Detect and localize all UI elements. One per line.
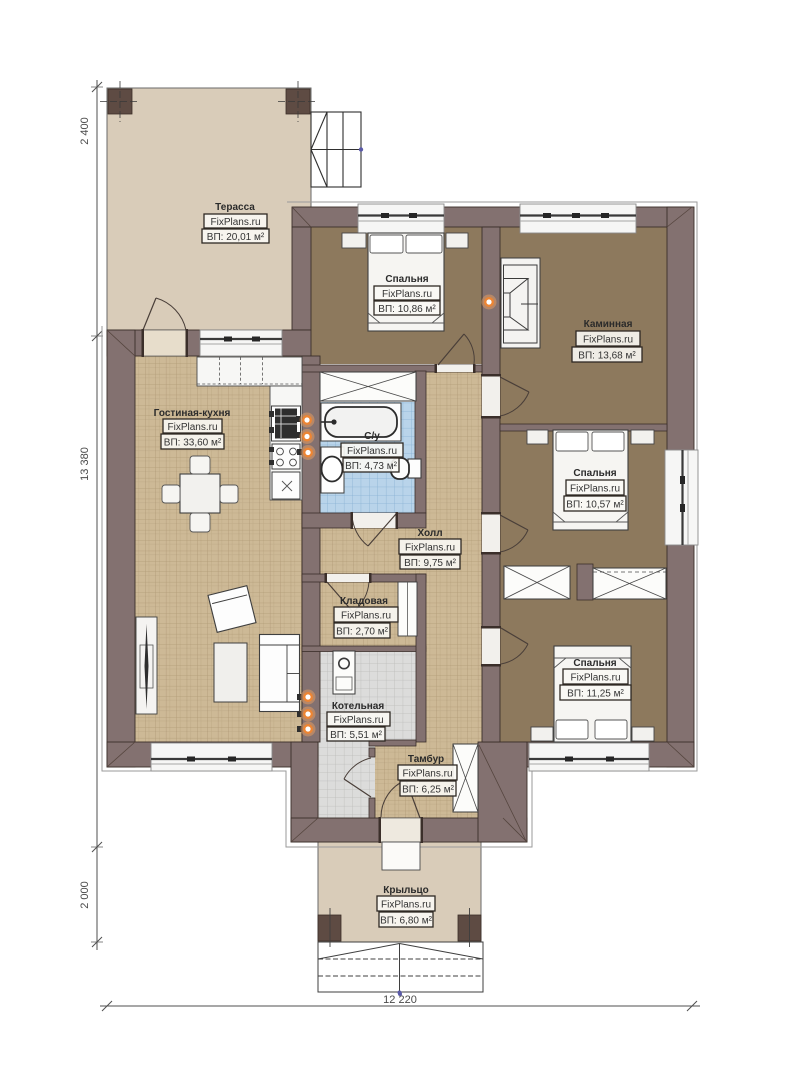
svg-text:FixPlans.ru: FixPlans.ru	[341, 611, 391, 622]
svg-text:Спальня: Спальня	[573, 658, 616, 669]
svg-text:ВП: 4,73 м²: ВП: 4,73 м²	[345, 461, 398, 472]
svg-text:ВП: 13,68 м²: ВП: 13,68 м²	[578, 351, 636, 362]
svg-text:Холл: Холл	[417, 528, 442, 539]
svg-text:FixPlans.ru: FixPlans.ru	[347, 446, 397, 457]
svg-text:ВП: 33,60 м²: ВП: 33,60 м²	[164, 438, 222, 449]
svg-text:ВП: 2,70 м²: ВП: 2,70 м²	[336, 627, 389, 638]
svg-text:FixPlans.ru: FixPlans.ru	[167, 422, 217, 433]
svg-text:ВП: 11,25 м²: ВП: 11,25 м²	[567, 689, 624, 700]
svg-text:FixPlans.ru: FixPlans.ru	[381, 900, 431, 911]
svg-text:Тамбур: Тамбур	[408, 753, 444, 765]
svg-text:13 380: 13 380	[79, 447, 91, 481]
svg-text:FixPlans.ru: FixPlans.ru	[405, 543, 455, 554]
svg-text:ВП: 9,75 м²: ВП: 9,75 м²	[404, 558, 457, 569]
svg-text:FixPlans.ru: FixPlans.ru	[583, 335, 633, 346]
svg-text:FixPlans.ru: FixPlans.ru	[570, 484, 620, 495]
svg-text:ВП: 6,80 м²: ВП: 6,80 м²	[380, 916, 433, 927]
svg-text:ВП: 10,57 м²: ВП: 10,57 м²	[566, 500, 624, 511]
svg-text:Спальня: Спальня	[385, 274, 428, 285]
svg-text:FixPlans.ru: FixPlans.ru	[333, 715, 383, 726]
svg-text:ВП: 20,01 м²: ВП: 20,01 м²	[207, 232, 265, 243]
svg-text:Каминная: Каминная	[584, 319, 633, 330]
svg-text:FixPlans.ru: FixPlans.ru	[402, 769, 452, 780]
svg-text:FixPlans.ru: FixPlans.ru	[570, 673, 620, 684]
svg-text:2 400: 2 400	[79, 117, 91, 145]
svg-text:FixPlans.ru: FixPlans.ru	[210, 217, 260, 228]
svg-text:ВП: 6,25 м²: ВП: 6,25 м²	[402, 785, 455, 796]
svg-text:Спальня: Спальня	[573, 468, 616, 479]
svg-text:FixPlans.ru: FixPlans.ru	[382, 289, 432, 300]
svg-text:Котельная: Котельная	[332, 701, 385, 712]
svg-text:Кладовая: Кладовая	[340, 596, 388, 607]
svg-text:Крыльцо: Крыльцо	[383, 885, 429, 896]
svg-text:Терасса: Терасса	[215, 202, 255, 213]
svg-text:ВП: 5,51 м²: ВП: 5,51 м²	[330, 730, 383, 741]
svg-text:ВП: 10,86 м²: ВП: 10,86 м²	[378, 304, 436, 315]
svg-text:Гостиная-кухня: Гостиная-кухня	[154, 408, 231, 419]
svg-text:С/у: С/у	[364, 431, 380, 442]
svg-text:2 000: 2 000	[79, 881, 91, 909]
